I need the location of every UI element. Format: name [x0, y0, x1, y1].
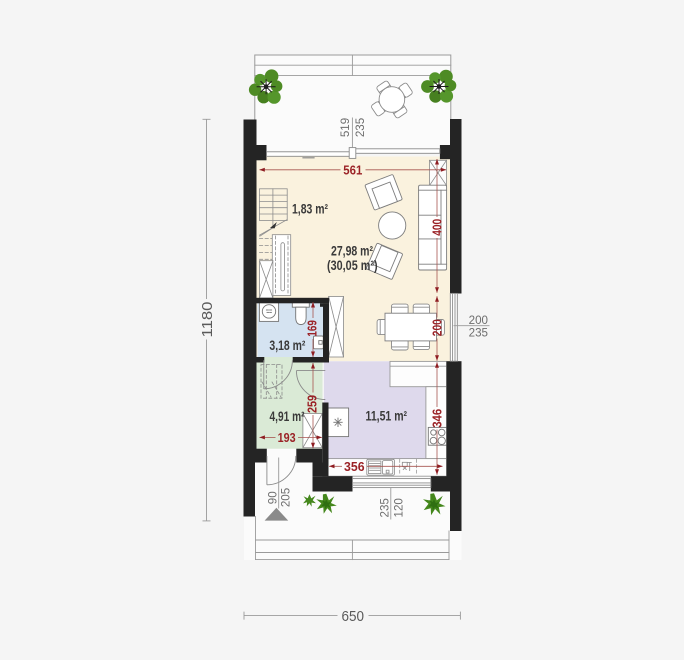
svg-text:1180: 1180 — [200, 302, 216, 338]
svg-text:200: 200 — [431, 319, 445, 336]
svg-text:346: 346 — [431, 409, 445, 428]
svg-text:200: 200 — [469, 314, 488, 327]
svg-text:519: 519 — [339, 118, 352, 137]
svg-text:561: 561 — [343, 163, 362, 177]
svg-text:400: 400 — [431, 219, 445, 236]
svg-text:356: 356 — [344, 460, 365, 474]
svg-text:650: 650 — [342, 609, 365, 625]
svg-text:259: 259 — [306, 395, 320, 413]
svg-text:205: 205 — [280, 488, 293, 507]
svg-text:3,18 m²: 3,18 m² — [269, 338, 305, 353]
svg-text:120: 120 — [393, 498, 406, 517]
svg-text:(30,05 m²): (30,05 m²) — [327, 258, 378, 273]
svg-text:235: 235 — [378, 498, 391, 517]
svg-text:11,51 m²: 11,51 m² — [366, 409, 408, 424]
svg-text:235: 235 — [469, 326, 488, 339]
svg-text:169: 169 — [305, 320, 319, 337]
svg-text:27,98 m²: 27,98 m² — [331, 244, 373, 259]
svg-text:4,91 m²: 4,91 m² — [270, 409, 305, 424]
svg-text:193: 193 — [278, 431, 296, 445]
svg-text:90: 90 — [267, 491, 280, 504]
svg-text:235: 235 — [354, 118, 367, 137]
svg-text:1,83 m²: 1,83 m² — [292, 202, 328, 217]
